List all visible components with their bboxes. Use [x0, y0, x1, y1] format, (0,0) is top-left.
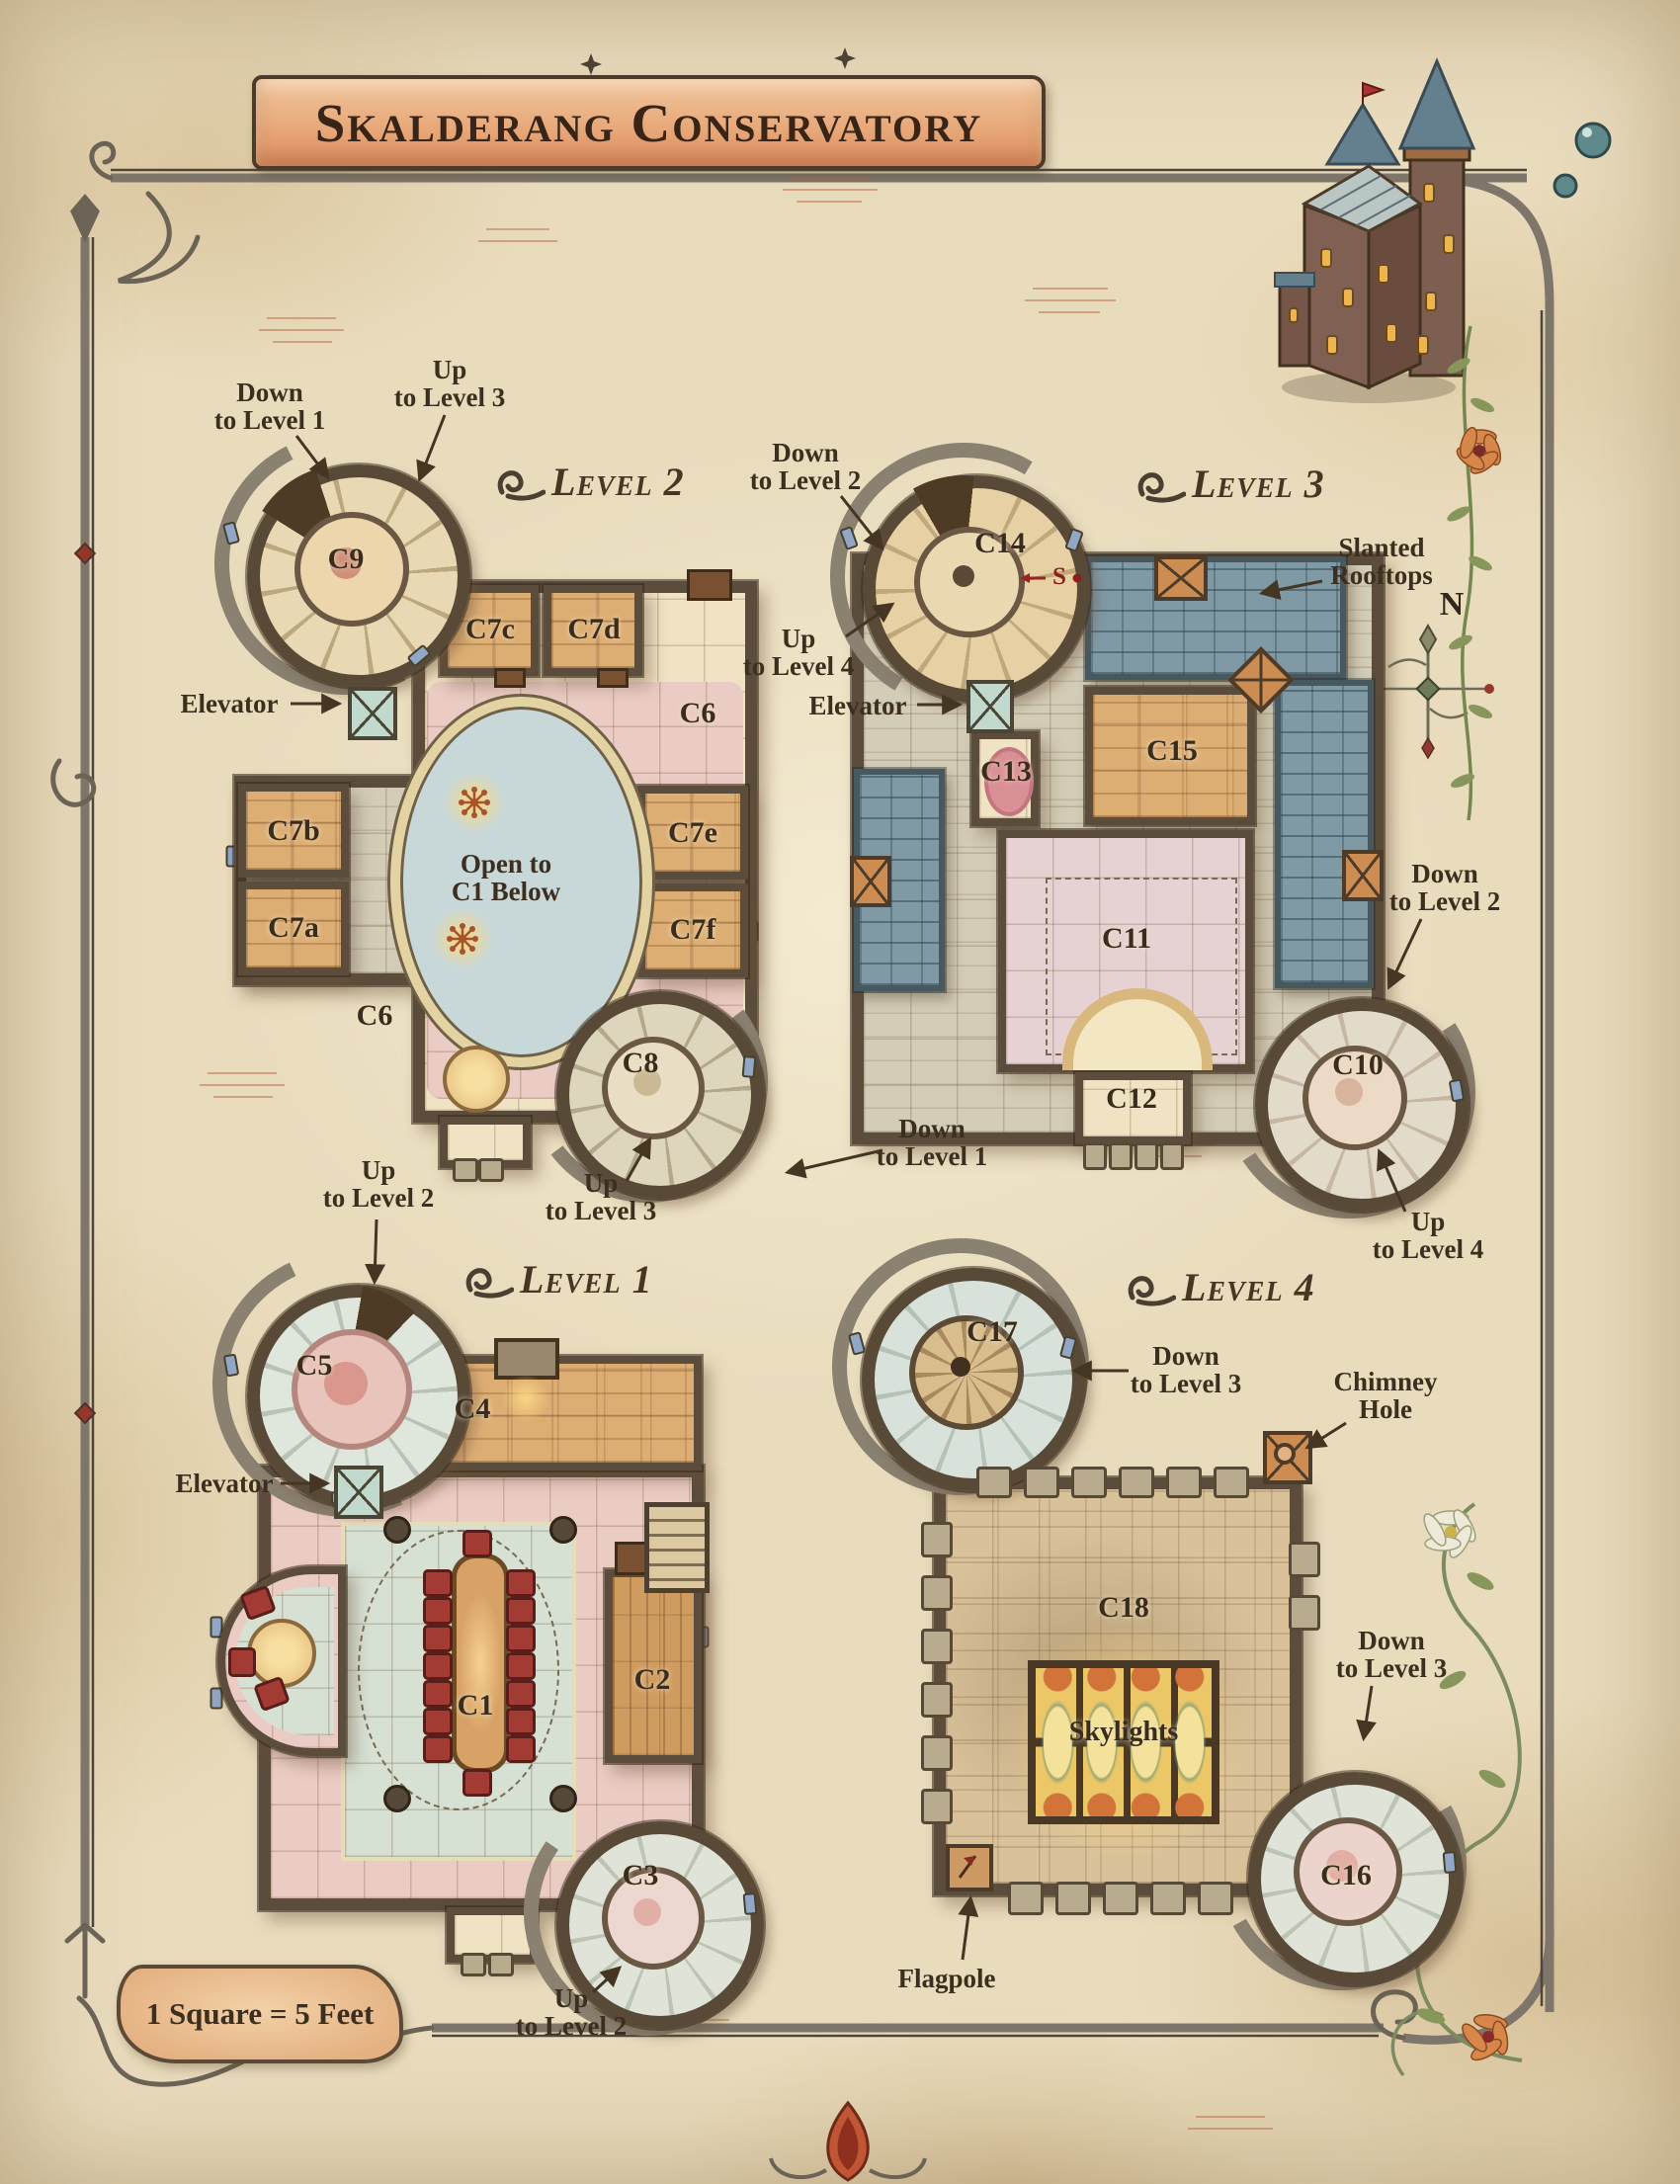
note-elevator-l3: Elevator: [809, 692, 907, 719]
chandelier-icon: [457, 785, 492, 820]
castle-illustration: [1275, 61, 1473, 403]
label-c16: C16: [1320, 1859, 1372, 1892]
label-c12: C12: [1106, 1082, 1157, 1116]
tower-c10: [1222, 966, 1475, 1218]
title-banner: Skalderang Conservatory: [252, 75, 1046, 170]
level-2-title: Level 2: [551, 462, 685, 502]
tower-c8: [527, 962, 768, 1203]
roof-north: [1085, 556, 1346, 680]
note-up-to-level-2-c5: Up to Level 2: [323, 1156, 434, 1212]
header-flourish-icon: [1134, 464, 1186, 504]
label-c7f: C7f: [670, 913, 716, 947]
label-c10: C10: [1332, 1049, 1384, 1082]
level-4-title: Level 4: [1182, 1268, 1315, 1307]
header-flourish-icon: [462, 1260, 514, 1300]
note-up-to-level-3-c9: Up to Level 3: [394, 356, 505, 411]
label-c7a: C7a: [268, 911, 319, 945]
chimney-icon: [1342, 850, 1384, 901]
header-flourish-icon: [494, 462, 546, 502]
long-table: [452, 1554, 509, 1773]
note-down-to-level-1-c8: Down to Level 1: [877, 1115, 987, 1170]
label-c7b: C7b: [267, 814, 319, 848]
level-1-title: Level 1: [520, 1260, 653, 1300]
note-elevator-l2: Elevator: [181, 690, 279, 717]
note-up-to-level-4-c14: Up to Level 4: [743, 625, 854, 680]
level-3-header: Level 3: [1134, 464, 1325, 504]
parchment-page: Skalderang Conservatory Level 2: [0, 0, 1680, 2184]
label-c5: C5: [296, 1349, 333, 1383]
staircase: [644, 1502, 710, 1593]
elevator-icon: [966, 680, 1014, 733]
label-c7d: C7d: [567, 613, 620, 646]
level-1-header: Level 1: [462, 1260, 653, 1300]
label-c8: C8: [623, 1047, 659, 1080]
note-up-to-level-3-c8: Up to Level 3: [546, 1169, 656, 1224]
label-c4: C4: [455, 1392, 491, 1426]
note-chimney-hole: Chimney Hole: [1333, 1368, 1437, 1423]
scale-note: 1 Square = 5 Feet: [121, 1969, 399, 2059]
label-c2: C2: [634, 1663, 671, 1697]
flower-orange-icon: [1454, 426, 1504, 477]
secret-door-marker: S: [1052, 563, 1066, 591]
header-flourish-icon: [1125, 1268, 1176, 1307]
round-table: [443, 1046, 510, 1113]
note-elevator-l1: Elevator: [176, 1470, 274, 1497]
label-c7c: C7c: [465, 613, 515, 646]
chimney-icon: [850, 856, 891, 907]
chimney-icon: [1154, 555, 1208, 601]
label-c1: C1: [458, 1689, 494, 1722]
bottom-spade-ornament: [771, 2103, 925, 2180]
elevator-icon: [348, 687, 397, 740]
level-4-header: Level 4: [1125, 1268, 1315, 1307]
label-c18: C18: [1098, 1591, 1149, 1625]
label-open-to-c1-below: Open to C1 Below: [452, 850, 560, 905]
label-c13: C13: [980, 755, 1032, 789]
note-down-to-level-1-c9: Down to Level 1: [214, 378, 325, 434]
roof-east: [1275, 680, 1374, 988]
page-title: Skalderang Conservatory: [256, 79, 1042, 166]
chandelier-icon: [445, 921, 480, 957]
note-slanted-rooftops: Slanted Rooftops: [1330, 534, 1433, 589]
label-c6-lower: C6: [357, 999, 393, 1033]
round-table: [247, 1619, 316, 1688]
level-3-title: Level 3: [1192, 464, 1325, 504]
note-flagpole: Flagpole: [898, 1965, 996, 1992]
vine-right-top: [1445, 326, 1503, 820]
fireplace-icon: [494, 1338, 559, 1380]
note-up-to-level-2-c3: Up to Level 2: [516, 1984, 627, 2040]
tower-c17: [832, 1238, 1089, 1495]
note-down-to-level-3-c17: Down to Level 3: [1131, 1342, 1241, 1397]
label-c6-upper: C6: [680, 697, 716, 730]
scale-banner: 1 Square = 5 Feet: [117, 1965, 403, 2063]
elevator-icon: [334, 1466, 383, 1519]
label-c9: C9: [328, 543, 365, 576]
label-c15: C15: [1146, 734, 1198, 768]
label-c11: C11: [1102, 922, 1151, 956]
note-down-to-level-2-c14: Down to Level 2: [750, 439, 861, 494]
note-down-to-level-3-c16: Down to Level 3: [1336, 1627, 1447, 1682]
note-down-to-level-2-c10: Down to Level 2: [1389, 860, 1500, 915]
level-2-header: Level 2: [494, 462, 685, 502]
flag-icon: [952, 1850, 985, 1884]
label-c14: C14: [974, 527, 1026, 560]
compass-north-letter: N: [1440, 586, 1465, 624]
label-c3: C3: [623, 1859, 659, 1892]
label-skylights: Skylights: [1069, 1717, 1179, 1748]
label-c7e: C7e: [668, 816, 717, 850]
label-c17: C17: [966, 1315, 1018, 1349]
note-up-to-level-4-c10: Up to Level 4: [1373, 1208, 1483, 1263]
